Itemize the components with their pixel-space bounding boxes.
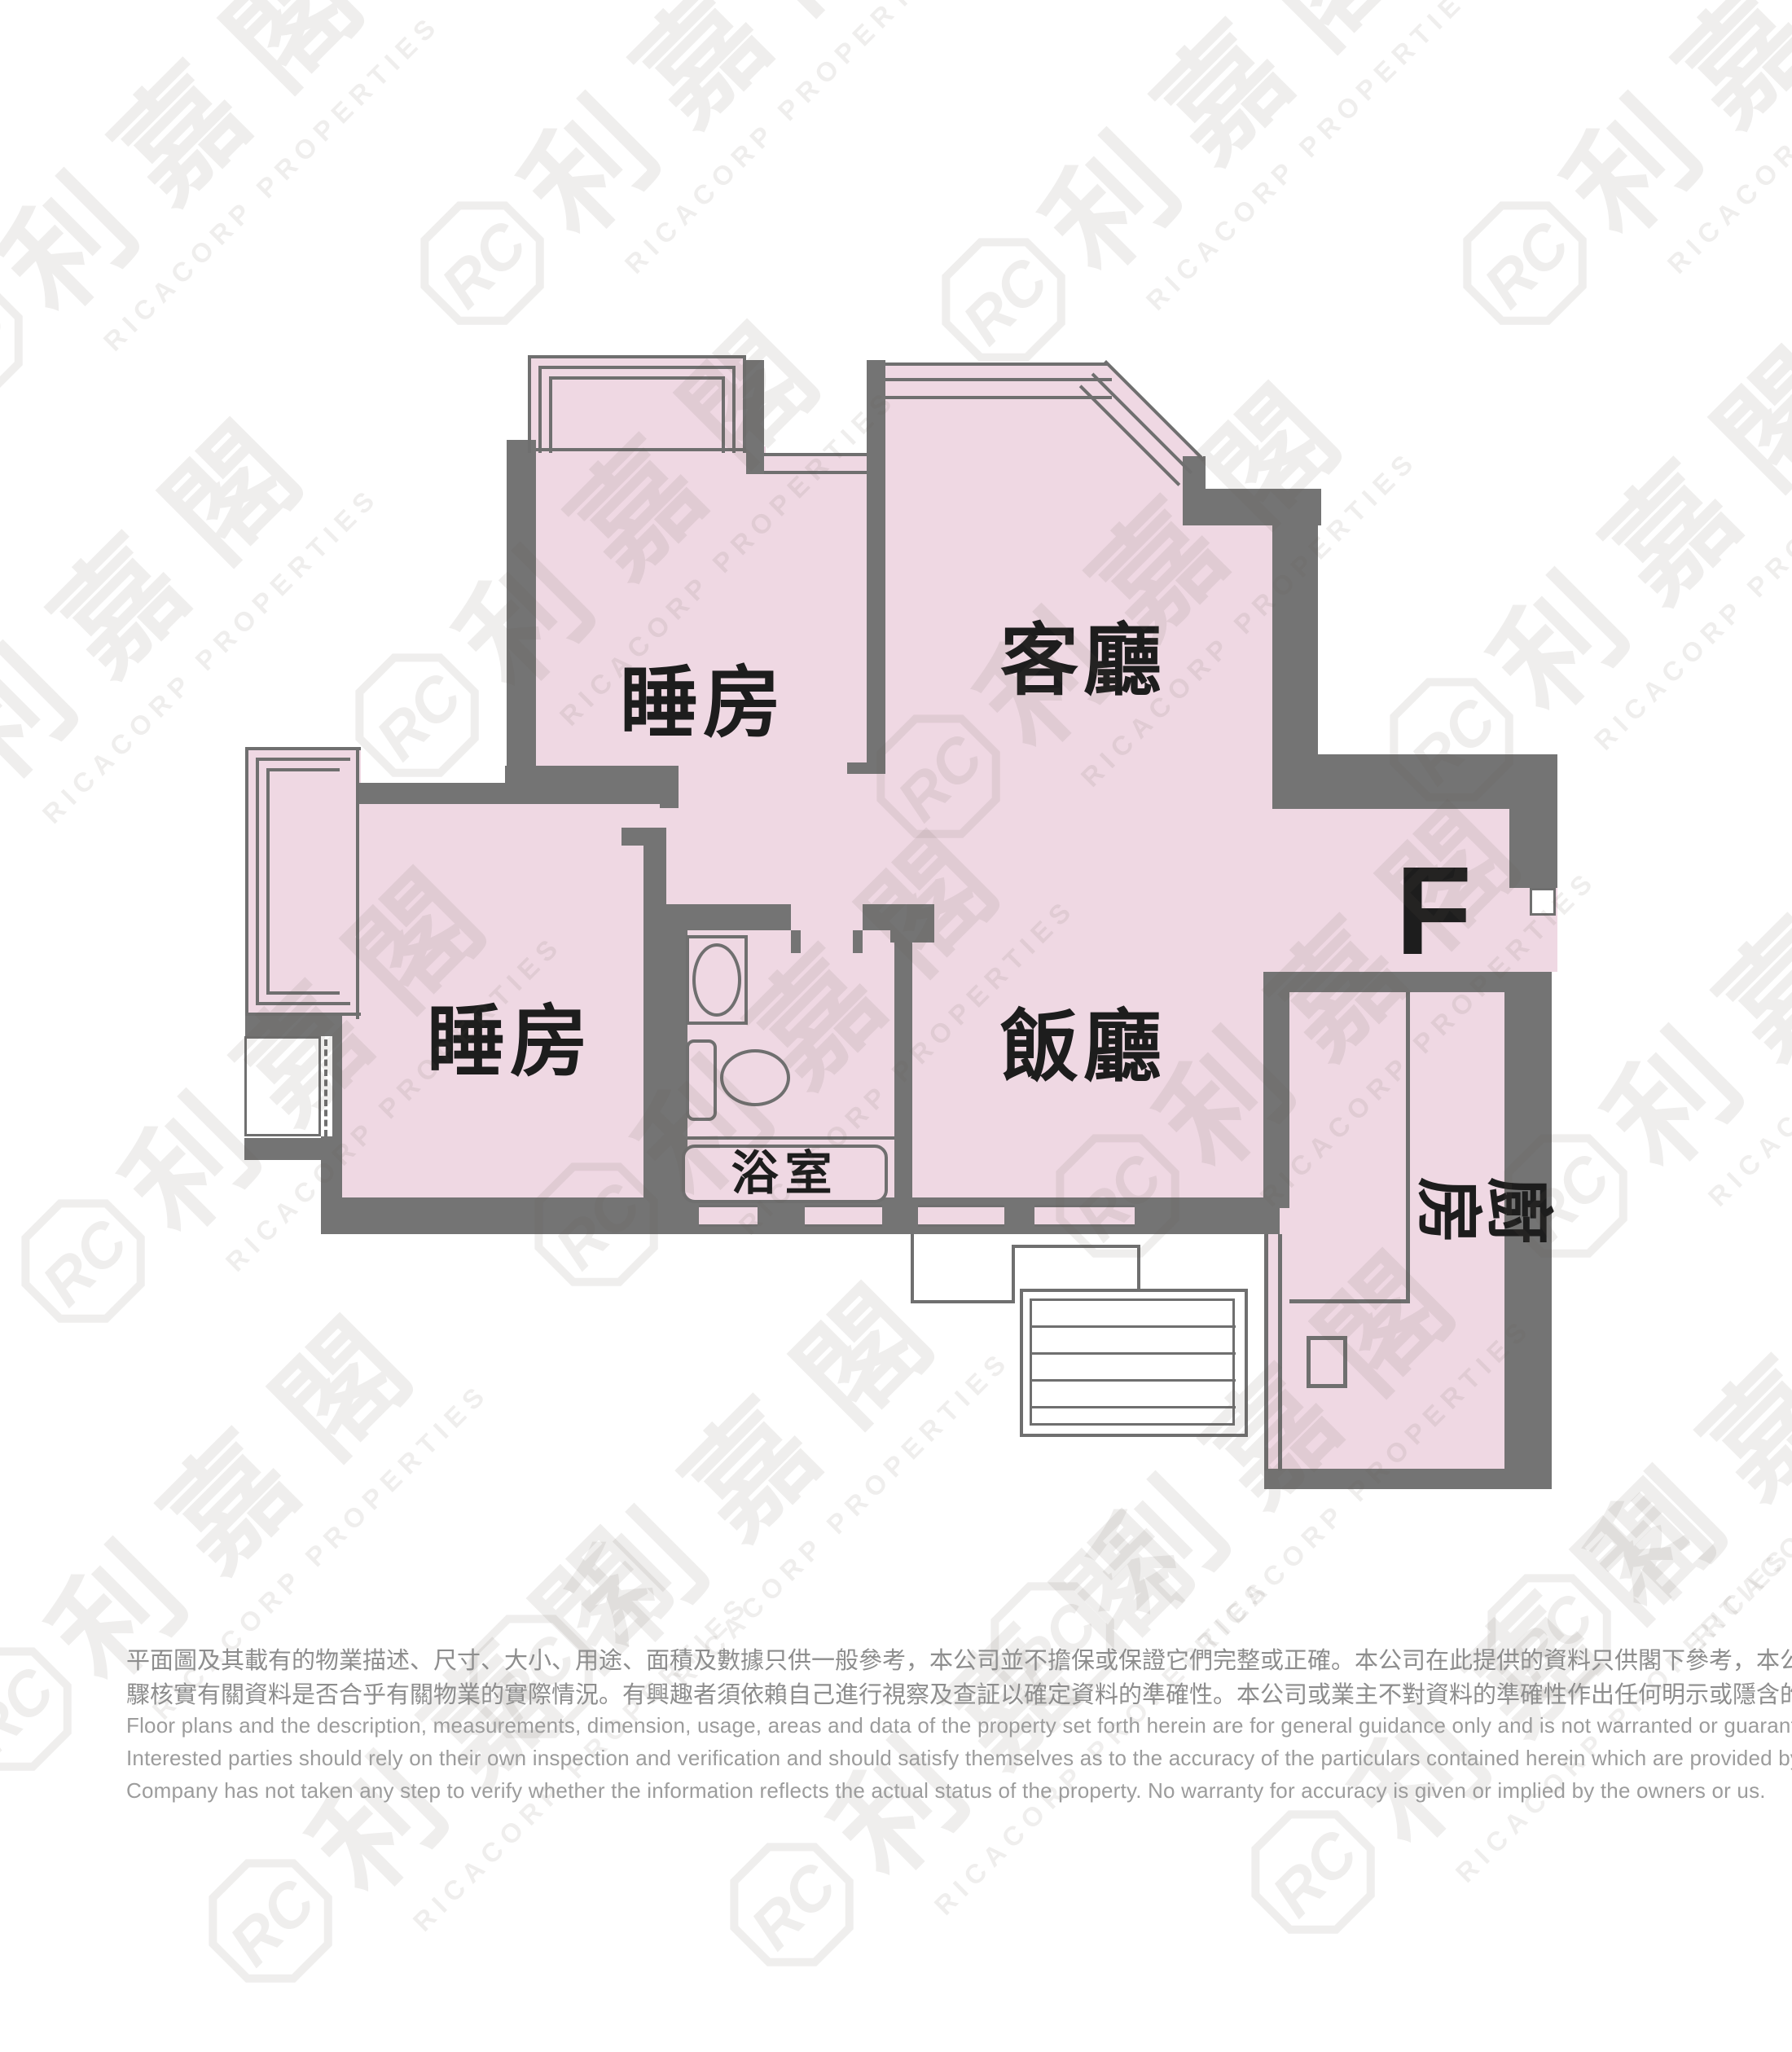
room-label-living-room: 客廳 — [911, 621, 1256, 703]
ricacorp-logo-icon: RC — [184, 1834, 357, 2007]
platform-left-wall — [746, 360, 764, 474]
dining-kitchen-divider-wall — [1263, 972, 1289, 1208]
platform-outline — [1012, 1245, 1140, 1248]
door-hook — [621, 828, 666, 846]
floor-plan: 浴室 睡房 客廳 睡房 飯廳 廚房 F — [0, 0, 1792, 1792]
room-label-dining-room: 飯廳 — [917, 1007, 1250, 1089]
disclaimer-chinese-line: 平面圖及其載有的物業描述、尺寸、大小、用途、面積及數據只供一般參考，本公司並不擔… — [126, 1644, 1792, 1678]
bay-window-2-frame — [266, 768, 340, 995]
disclaimer-chinese-line: 驟核實有關資料是否合乎有關物業的實際情況。有興趣者須依賴自己進行視察及查証以確定… — [126, 1678, 1792, 1712]
door-hook — [791, 930, 801, 953]
svg-text:RC: RC — [216, 1866, 329, 1979]
stair-tread-line — [1032, 1352, 1236, 1355]
stair-tread-line — [1032, 1379, 1236, 1382]
left-outer-wall — [321, 1136, 342, 1234]
platform-edge-wall — [332, 1036, 342, 1138]
entrance-right-wall — [1509, 809, 1557, 888]
bathroom-label-box: 浴室 — [682, 1145, 888, 1203]
sink-basin-icon — [692, 943, 741, 1017]
bottom-wall-window — [699, 1205, 758, 1227]
bottom-wall-window — [805, 1205, 882, 1227]
ac-platform-opening — [766, 365, 867, 453]
door-hook — [853, 930, 863, 953]
kitchen-door-line — [1278, 1234, 1282, 1470]
bottom-wall-window — [918, 1205, 1004, 1227]
ricacorp-logo-icon: RC — [1227, 1786, 1399, 1958]
ac-platform — [244, 1036, 321, 1136]
kitchen-door-line — [1264, 1234, 1268, 1470]
platform-outline — [911, 1234, 914, 1303]
bedroom-1-left-wall — [507, 440, 536, 798]
stair-tread-line — [1032, 1406, 1236, 1408]
living-window-line — [885, 396, 1112, 399]
bathroom-right-wall — [894, 904, 912, 1214]
bay-bottom-wall — [245, 1016, 342, 1036]
disclaimer-english-line: Floor plans and the description, measure… — [126, 1709, 1792, 1742]
room-label-kitchen: 廚房 — [1412, 1139, 1553, 1294]
entrance-door-recess — [1530, 888, 1556, 916]
kitchen-sink-icon — [1307, 1336, 1347, 1388]
kitchen-counter-line — [1289, 1299, 1410, 1303]
bedroom-1-living-divider-wall — [867, 474, 885, 774]
platform-window-line — [764, 453, 867, 456]
platform-window-line — [764, 471, 867, 474]
floor-plan-document: 浴室 睡房 客廳 睡房 飯廳 廚房 F RC利嘉閣RICACORP PROPER… — [0, 0, 1792, 1792]
ricacorp-logo-icon: RC — [705, 1818, 878, 1991]
bedroom-2-area — [342, 783, 665, 1197]
kitchen-bottom-wall — [1264, 1469, 1552, 1489]
platform-bottom-wall — [244, 1138, 321, 1160]
toilet-bowl-icon — [720, 1049, 790, 1106]
living-room-right-wall — [1272, 489, 1318, 754]
disclaimer-english: Floor plans and the description, measure… — [126, 1709, 1792, 1807]
door-hook — [847, 762, 867, 774]
platform-outline — [1137, 1245, 1140, 1292]
disclaimer-chinese: 平面圖及其載有的物業描述、尺寸、大小、用途、面積及數據只供一般參考，本公司並不擔… — [126, 1644, 1792, 1712]
room-label-bedroom-1: 睡房 — [538, 663, 868, 745]
platform-right-wall — [867, 360, 885, 474]
bottom-wall-window — [1034, 1205, 1135, 1227]
outside-corner — [1201, 355, 1321, 489]
ac-platform-dashed-line — [324, 1039, 327, 1136]
bedroom-2-top-wall — [356, 783, 679, 804]
living-window-line — [885, 363, 1112, 366]
disclaimer-english-line: Interested parties should rely on their … — [126, 1742, 1792, 1774]
svg-text:RC: RC — [737, 1850, 850, 1963]
living-window-line — [885, 378, 1112, 381]
bathroom-divider-line — [687, 1136, 894, 1140]
svg-text:RC: RC — [1258, 1817, 1372, 1931]
room-label-bedroom-2: 睡房 — [347, 1002, 673, 1084]
kitchen-counter-line — [1406, 992, 1410, 1302]
unit-label: F — [1375, 846, 1492, 978]
platform-outline — [911, 1300, 1015, 1303]
disclaimer-english-line: Company has not taken any step to verify… — [126, 1774, 1792, 1807]
hallway-top-wall — [1272, 754, 1557, 809]
bathroom-top-wall — [687, 904, 791, 930]
platform-outline — [1012, 1245, 1015, 1303]
room-label-bathroom: 浴室 — [731, 1149, 838, 1199]
stair-tread-line — [1032, 1325, 1236, 1328]
toilet-tank-icon — [686, 1039, 717, 1121]
bay-window-1-frame — [549, 376, 725, 453]
